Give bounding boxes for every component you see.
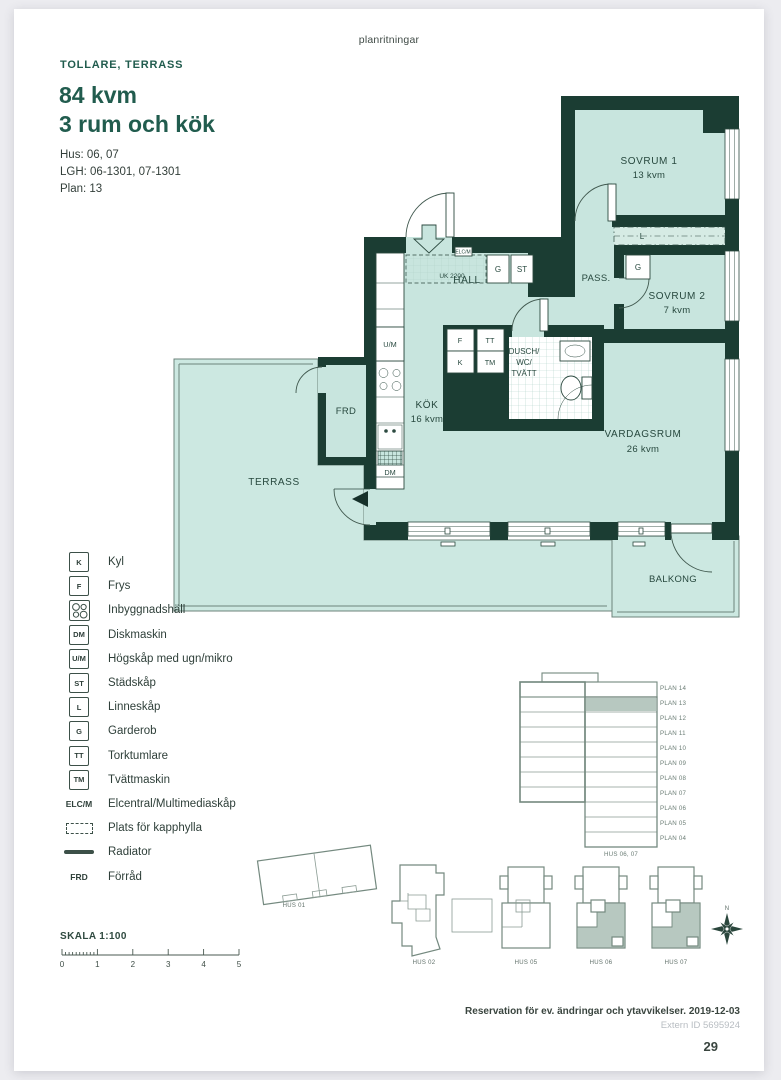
- marker-tm: TM: [485, 358, 496, 367]
- legend-item-9: TTTorktumlare: [60, 744, 236, 768]
- legend-label: Tvättmaskin: [108, 774, 170, 786]
- footer-extern-id: Extern ID 5695924: [465, 1019, 740, 1033]
- legend-box-icon: TT: [60, 746, 98, 766]
- radiator-icon: [60, 850, 98, 854]
- legend-label: Torktumlare: [108, 750, 168, 762]
- room-label-bath-3: TVÄTT: [511, 369, 536, 378]
- scale-tick-5: 5: [237, 960, 242, 969]
- marker-st: ST: [517, 265, 527, 274]
- legend-label: Städskåp: [108, 677, 156, 689]
- room-label-sovrum1: SOVRUM 1: [620, 156, 677, 167]
- legend-item-10: TMTvättmaskin: [60, 768, 236, 792]
- scale-tick-4: 4: [201, 960, 206, 969]
- coat-rack-icon: [60, 823, 98, 834]
- room-area-sovrum2: 7 kvm: [664, 305, 691, 316]
- room-label-bath-2: WC/: [516, 358, 532, 367]
- legend-item-6: STStädskåp: [60, 671, 236, 695]
- marker-elcm: ELC/M: [455, 250, 470, 256]
- room-label-vardagsrum: VARDAGSRUM: [605, 429, 682, 440]
- legend-item-14: FRDFörråd: [60, 864, 236, 888]
- legend-item-12: Plats för kapphylla: [60, 816, 236, 840]
- legend-box-icon: U/M: [60, 649, 98, 669]
- legend-item-11: ELC/MElcentral/Multimediaskåp: [60, 792, 236, 816]
- marker-g-sovrum2: G: [635, 263, 641, 272]
- legend-box-icon: ST: [60, 673, 98, 693]
- hus06-label: HUS 06: [590, 960, 613, 966]
- floor-elevation: PLAN 14 PLAN 13 PLAN 12 PLAN 11 PLAN 10 …: [514, 669, 750, 864]
- hus06-footprint: [575, 867, 627, 948]
- room-label-balkong: BALKONG: [649, 574, 697, 585]
- legend-item-4: DMDiskmaskin: [60, 623, 236, 647]
- project-label: TOLLARE, TERRASS: [60, 59, 183, 71]
- legend-box-icon: G: [60, 721, 98, 741]
- marker-uk2200: UK 2200: [439, 273, 465, 280]
- floor-label: PLAN 09: [660, 760, 687, 767]
- legend-label: Förråd: [108, 871, 142, 883]
- marker-tt: TT: [486, 336, 495, 345]
- room-label-pass: PASS.: [582, 273, 611, 284]
- legend-abbr-icon: FRD: [60, 872, 98, 882]
- legend-box-icon: DM: [60, 625, 98, 645]
- marker-k: K: [458, 358, 463, 367]
- floor-label: PLAN 11: [660, 730, 686, 737]
- dishwasher: [378, 451, 402, 465]
- scale-ruler: 0 1 2 3 4 5: [60, 945, 260, 971]
- room-label-kok: KÖK: [416, 399, 439, 411]
- header-brand: planritningar: [14, 34, 764, 46]
- marker-dm: DM: [384, 468, 395, 477]
- hus01-footprint: HUS 01: [257, 845, 376, 909]
- legend-label: Diskmaskin: [108, 629, 167, 641]
- floor-label: PLAN 08: [660, 775, 687, 782]
- compass-icon: N: [711, 906, 743, 945]
- legend-item-8: GGarderob: [60, 719, 236, 743]
- room-area-vardagsrum: 26 kvm: [627, 444, 659, 455]
- hus02-label: HUS 02: [413, 960, 436, 966]
- room-label-terrass: TERRASS: [248, 477, 299, 488]
- scale-bar: SKALA 1:100 0 1 2 3 4 5: [60, 931, 260, 971]
- hus07-label: HUS 07: [665, 960, 688, 966]
- room-label-frd: FRD: [336, 406, 356, 417]
- floor-label: PLAN 14: [660, 685, 687, 692]
- legend-box-icon: F: [60, 576, 98, 596]
- hus05-footprint: [500, 867, 552, 948]
- marker-f: F: [458, 336, 463, 345]
- legend-label: Kyl: [108, 556, 124, 568]
- site-plan: HUS 01 HUS 02 HUS 05 HUS 06: [244, 841, 750, 981]
- legend-item-5: U/MHögskåp med ugn/mikro: [60, 647, 236, 671]
- hus02-footprint: HUS 02: [392, 865, 444, 966]
- legend-item-2: FFrys: [60, 574, 236, 598]
- footer-disclaimer: Reservation för ev. ändringar och ytavvi…: [465, 1005, 740, 1019]
- room-label-bath-1: DUSCH/: [509, 347, 540, 356]
- scale-tick-1: 1: [95, 960, 100, 969]
- legend-box-icon: L: [60, 697, 98, 717]
- hus05-label: HUS 05: [515, 960, 538, 966]
- legend-label: Linneskåp: [108, 701, 160, 713]
- floorplan-drawing: SOVRUM 1 13 kvm SOVRUM 2 7 kvm PASS. HAL…: [154, 89, 766, 634]
- room-area-kok: 16 kvm: [411, 414, 443, 425]
- legend-label: Högskåp med ugn/mikro: [108, 653, 233, 665]
- legend-item-1: KKyl: [60, 550, 236, 574]
- scale-label: SKALA 1:100: [60, 931, 260, 942]
- floor-label: PLAN 13: [660, 700, 687, 707]
- apartment-floor: [370, 102, 733, 530]
- room-label-sovrum2: SOVRUM 2: [648, 291, 705, 302]
- scale-tick-3: 3: [166, 960, 171, 969]
- document-page: planritningar TOLLARE, TERRASS 84 kvm 3 …: [14, 9, 764, 1071]
- highlighted-floor: [586, 698, 656, 711]
- compass-n-label: N: [725, 906, 730, 912]
- legend-box-icon: K: [60, 552, 98, 572]
- page-number: 29: [465, 1039, 718, 1054]
- legend-item-7: LLinneskåp: [60, 695, 236, 719]
- hus01-label: HUS 01: [283, 903, 306, 909]
- page-footer: Reservation för ev. ändringar och ytavvi…: [465, 1005, 740, 1054]
- room-area-sovrum1: 13 kvm: [633, 170, 665, 181]
- floor-label: PLAN 06: [660, 805, 687, 812]
- legend-label: Inbyggnadshäll: [108, 604, 185, 616]
- legend-label: Plats för kapphylla: [108, 822, 202, 834]
- courtyard-outline: [452, 899, 492, 932]
- marker-g-hall: G: [495, 265, 501, 274]
- floor-label: PLAN 12: [660, 715, 687, 722]
- legend-label: Frys: [108, 580, 130, 592]
- legend: KKylFFrysInbyggnadshällDMDiskmaskinU/MHö…: [60, 550, 236, 889]
- legend-box-icon: TM: [60, 770, 98, 790]
- legend-item-3: Inbyggnadshäll: [60, 598, 236, 622]
- marker-um: U/M: [383, 340, 396, 349]
- floor-label: PLAN 05: [660, 820, 687, 827]
- legend-item-13: Radiator: [60, 840, 236, 864]
- legend-label: Radiator: [108, 846, 151, 858]
- scale-tick-0: 0: [60, 960, 65, 969]
- hob-icon: [60, 600, 98, 621]
- legend-abbr-icon: ELC/M: [60, 799, 98, 809]
- legend-label: Garderob: [108, 725, 157, 737]
- floor-label: PLAN 10: [660, 745, 687, 752]
- legend-label: Elcentral/Multimediaskåp: [108, 798, 236, 810]
- floor-label: PLAN 07: [660, 790, 687, 797]
- scale-tick-2: 2: [131, 960, 136, 969]
- marker-l: L: [640, 232, 645, 241]
- hus07-footprint: [650, 867, 702, 948]
